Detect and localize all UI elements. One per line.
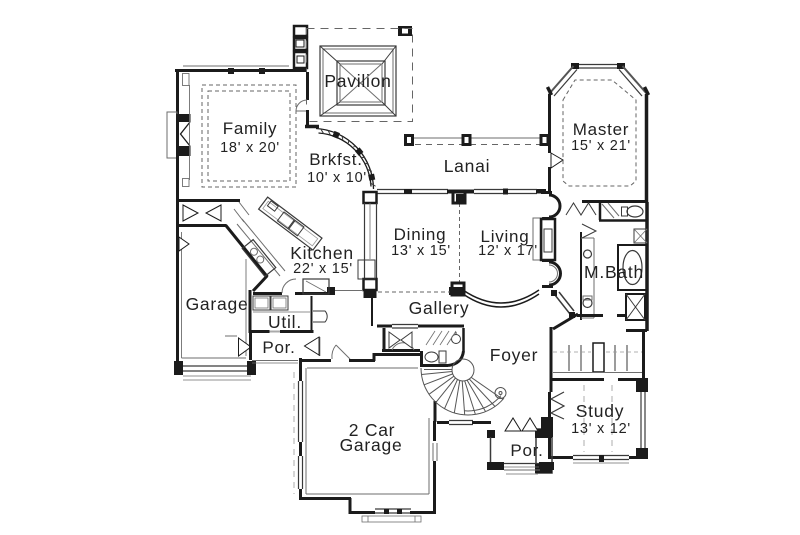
svg-text:Dining: Dining [394,225,447,244]
svg-text:Family: Family [223,119,278,138]
svg-text:Garage: Garage [340,435,403,455]
svg-text:Brkfst.: Brkfst. [309,150,362,169]
svg-text:Kitchen: Kitchen [290,243,354,263]
svg-text:15' x 21': 15' x 21' [571,138,631,154]
svg-text:13' x 12': 13' x 12' [571,421,631,437]
svg-text:M.Bath: M.Bath [584,262,644,282]
svg-text:Study: Study [576,401,625,421]
svg-text:12' x 17': 12' x 17' [478,243,538,259]
svg-text:Por.: Por. [510,441,543,460]
svg-text:Garage: Garage [186,294,249,314]
svg-text:Util.: Util. [268,312,302,332]
svg-text:Foyer: Foyer [490,345,538,365]
svg-text:Lanai: Lanai [444,156,491,176]
svg-text:22' x 15': 22' x 15' [293,261,353,277]
svg-text:18' x 20': 18' x 20' [220,140,280,156]
svg-text:Pavilion: Pavilion [324,71,391,91]
svg-text:Gallery: Gallery [409,298,470,318]
svg-text:Por.: Por. [262,338,295,357]
svg-text:10' x 10': 10' x 10' [307,170,367,186]
svg-text:13' x 15': 13' x 15' [391,243,451,259]
svg-text:Master: Master [573,120,629,139]
